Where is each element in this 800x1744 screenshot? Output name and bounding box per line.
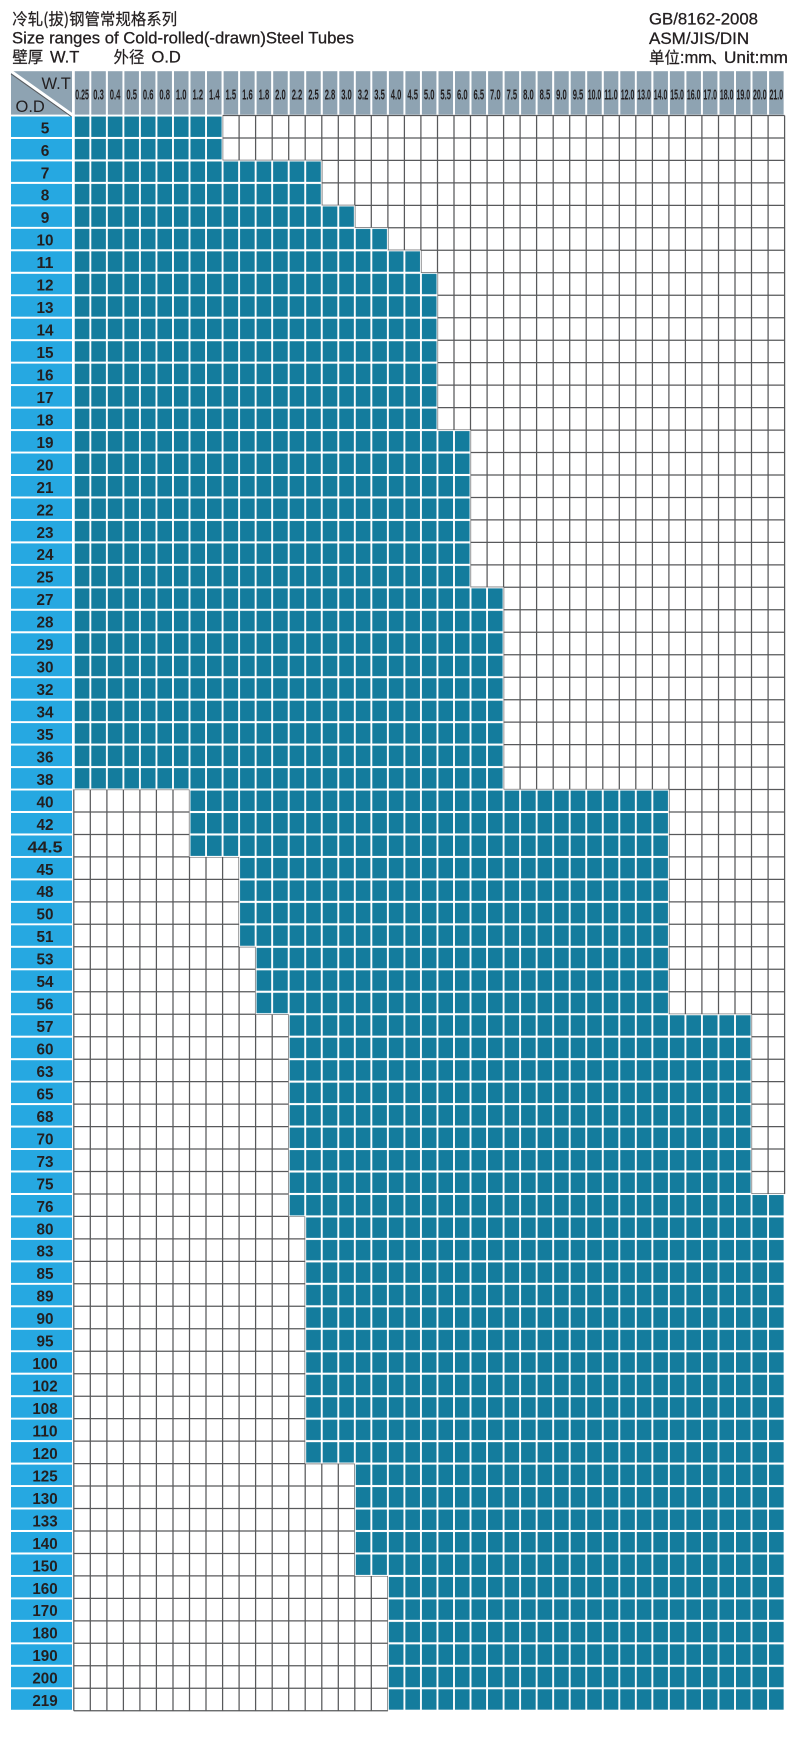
svg-text:63: 63 (37, 1064, 54, 1081)
svg-text:32: 32 (37, 682, 54, 699)
svg-text:2.8: 2.8 (325, 87, 336, 104)
svg-text:85: 85 (37, 1266, 54, 1283)
svg-text:22: 22 (37, 502, 54, 519)
svg-text:11: 11 (37, 255, 54, 272)
svg-text:20.0: 20.0 (753, 87, 767, 104)
svg-text:1.8: 1.8 (259, 87, 270, 104)
svg-text:20: 20 (37, 457, 54, 474)
svg-text:30: 30 (37, 660, 54, 677)
svg-text:1.4: 1.4 (209, 87, 220, 104)
svg-text:13: 13 (37, 300, 54, 317)
svg-text:2.2: 2.2 (292, 87, 303, 104)
svg-text:140: 140 (32, 1536, 57, 1553)
svg-text:27: 27 (37, 592, 54, 609)
svg-text:10.0: 10.0 (588, 87, 602, 104)
svg-text:8: 8 (41, 188, 50, 205)
svg-text:42: 42 (37, 817, 54, 834)
svg-text:7.5: 7.5 (507, 87, 518, 104)
svg-text:0.3: 0.3 (93, 87, 104, 104)
svg-text:75: 75 (37, 1176, 54, 1193)
svg-text:200: 200 (32, 1671, 57, 1688)
svg-text:40: 40 (37, 794, 54, 811)
svg-text:6: 6 (41, 143, 50, 160)
svg-text:Size ranges of Cold-rolled(-dr: Size ranges of Cold-rolled(-drawn)Steel … (12, 29, 354, 48)
svg-text:0.25: 0.25 (75, 87, 89, 104)
svg-text:95: 95 (37, 1334, 54, 1351)
svg-text:15.0: 15.0 (670, 87, 684, 104)
svg-text:2.0: 2.0 (275, 87, 286, 104)
svg-text:16: 16 (37, 368, 54, 385)
svg-text:12.0: 12.0 (621, 87, 635, 104)
svg-text:108: 108 (32, 1401, 58, 1418)
svg-text:160: 160 (32, 1581, 57, 1598)
svg-text:0.6: 0.6 (143, 87, 154, 104)
svg-text:W.T: W.T (42, 75, 71, 93)
svg-text:18: 18 (37, 412, 54, 429)
svg-text:14: 14 (37, 323, 54, 340)
svg-text:1.0: 1.0 (176, 87, 187, 104)
svg-text:6.5: 6.5 (474, 87, 485, 104)
svg-text:133: 133 (32, 1513, 58, 1530)
svg-text:7.0: 7.0 (490, 87, 501, 104)
svg-text:89: 89 (37, 1289, 54, 1306)
svg-text:35: 35 (37, 727, 54, 744)
svg-text:3.5: 3.5 (374, 87, 385, 104)
svg-text:65: 65 (37, 1087, 54, 1104)
svg-text:0.8: 0.8 (159, 87, 170, 104)
svg-text:50: 50 (37, 907, 54, 924)
svg-text:6.0: 6.0 (457, 87, 468, 104)
svg-text:3.2: 3.2 (358, 87, 369, 104)
svg-text:48: 48 (37, 884, 54, 901)
svg-text:120: 120 (32, 1446, 57, 1463)
svg-text:25: 25 (37, 570, 54, 587)
svg-text:83: 83 (37, 1244, 54, 1261)
svg-text:5: 5 (41, 120, 50, 137)
svg-text:102: 102 (32, 1379, 57, 1396)
svg-text:57: 57 (37, 1019, 54, 1036)
svg-text:28: 28 (37, 615, 54, 632)
svg-text:11.0: 11.0 (604, 87, 618, 104)
svg-text:219: 219 (32, 1693, 58, 1710)
svg-text:1.5: 1.5 (226, 87, 237, 104)
svg-text:0.4: 0.4 (110, 87, 121, 104)
svg-text:180: 180 (32, 1626, 57, 1643)
svg-text:23: 23 (37, 525, 54, 542)
svg-text::mm: :mm (680, 49, 712, 67)
svg-text:60: 60 (37, 1042, 54, 1059)
svg-text:36: 36 (37, 749, 54, 766)
svg-text:3.0: 3.0 (341, 87, 352, 104)
svg-text:2.5: 2.5 (308, 87, 319, 104)
svg-text:GB/8162-2008: GB/8162-2008 (649, 10, 758, 29)
svg-text:16.0: 16.0 (687, 87, 701, 104)
svg-text:125: 125 (32, 1468, 58, 1485)
svg-text:38: 38 (37, 772, 54, 789)
svg-text:9.0: 9.0 (556, 87, 567, 104)
svg-text:70: 70 (37, 1131, 54, 1148)
svg-text:8.0: 8.0 (523, 87, 534, 104)
svg-text:8.5: 8.5 (540, 87, 551, 104)
svg-text:13.0: 13.0 (637, 87, 651, 104)
svg-text:150: 150 (32, 1558, 57, 1575)
svg-text:15: 15 (37, 345, 54, 362)
svg-text:130: 130 (32, 1491, 57, 1508)
svg-text:ASM/JIS/DIN: ASM/JIS/DIN (649, 29, 749, 48)
svg-text:5.5: 5.5 (440, 87, 451, 104)
svg-text:0.5: 0.5 (126, 87, 137, 104)
svg-text:110: 110 (32, 1424, 57, 1441)
svg-text:17: 17 (37, 390, 54, 407)
svg-text:O.D: O.D (152, 48, 181, 66)
svg-text:10: 10 (37, 233, 54, 250)
svg-text:190: 190 (32, 1648, 57, 1665)
svg-text:O.D: O.D (16, 98, 45, 116)
svg-text:44.5: 44.5 (28, 839, 63, 856)
svg-text:34: 34 (37, 705, 54, 722)
svg-text:54: 54 (37, 974, 54, 991)
svg-text:170: 170 (32, 1603, 57, 1620)
svg-text:76: 76 (37, 1199, 54, 1216)
svg-text:14.0: 14.0 (654, 87, 668, 104)
svg-text:Unit:mm: Unit:mm (724, 49, 788, 67)
svg-text:18.0: 18.0 (720, 87, 734, 104)
svg-text:68: 68 (37, 1109, 54, 1126)
svg-text:29: 29 (37, 637, 54, 654)
svg-text:17.0: 17.0 (703, 87, 717, 104)
svg-text:24: 24 (37, 547, 54, 564)
svg-text:7: 7 (41, 165, 50, 182)
svg-text:5.0: 5.0 (424, 87, 435, 104)
svg-text:19: 19 (37, 435, 54, 452)
svg-text:45: 45 (37, 862, 54, 879)
svg-text:W.T: W.T (50, 48, 79, 66)
svg-text:90: 90 (37, 1311, 54, 1328)
svg-text:51: 51 (37, 929, 54, 946)
svg-text:80: 80 (37, 1221, 54, 1238)
svg-text:19.0: 19.0 (737, 87, 751, 104)
svg-text:21.0: 21.0 (770, 87, 784, 104)
svg-text:1.2: 1.2 (193, 87, 204, 104)
svg-text:56: 56 (37, 997, 54, 1014)
svg-text:21: 21 (37, 480, 54, 497)
svg-text:100: 100 (32, 1356, 57, 1373)
svg-text:9: 9 (41, 210, 50, 227)
svg-text:4.5: 4.5 (407, 87, 418, 104)
svg-text:1.6: 1.6 (242, 87, 253, 104)
svg-text:73: 73 (37, 1154, 54, 1171)
svg-text:53: 53 (37, 952, 54, 969)
svg-text:4.0: 4.0 (391, 87, 402, 104)
svg-text:12: 12 (37, 278, 54, 295)
svg-text:9.5: 9.5 (573, 87, 584, 104)
